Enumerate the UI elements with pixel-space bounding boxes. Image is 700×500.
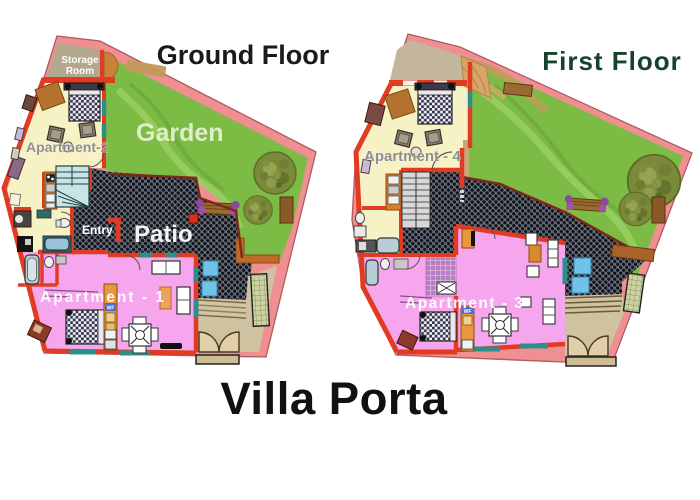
svg-text:WF: WF	[107, 306, 115, 312]
svg-text:Storage: Storage	[61, 55, 99, 66]
svg-text:Apartment - 1: Apartment - 1	[40, 289, 166, 306]
svg-text:Apartment - 3: Apartment - 3	[405, 295, 524, 312]
svg-text:Patio: Patio	[134, 221, 193, 248]
svg-text:Ground Floor: Ground Floor	[157, 40, 330, 70]
svg-text:Apartment-2: Apartment-2	[26, 139, 109, 155]
svg-text:First Floor: First Floor	[542, 46, 682, 76]
svg-text:Apartment - 4: Apartment - 4	[364, 148, 461, 165]
svg-text:Villa Porta: Villa Porta	[220, 373, 447, 424]
svg-text:Garden: Garden	[136, 119, 224, 147]
svg-text:Entry: Entry	[82, 223, 113, 237]
svg-text:Room: Room	[66, 66, 94, 77]
